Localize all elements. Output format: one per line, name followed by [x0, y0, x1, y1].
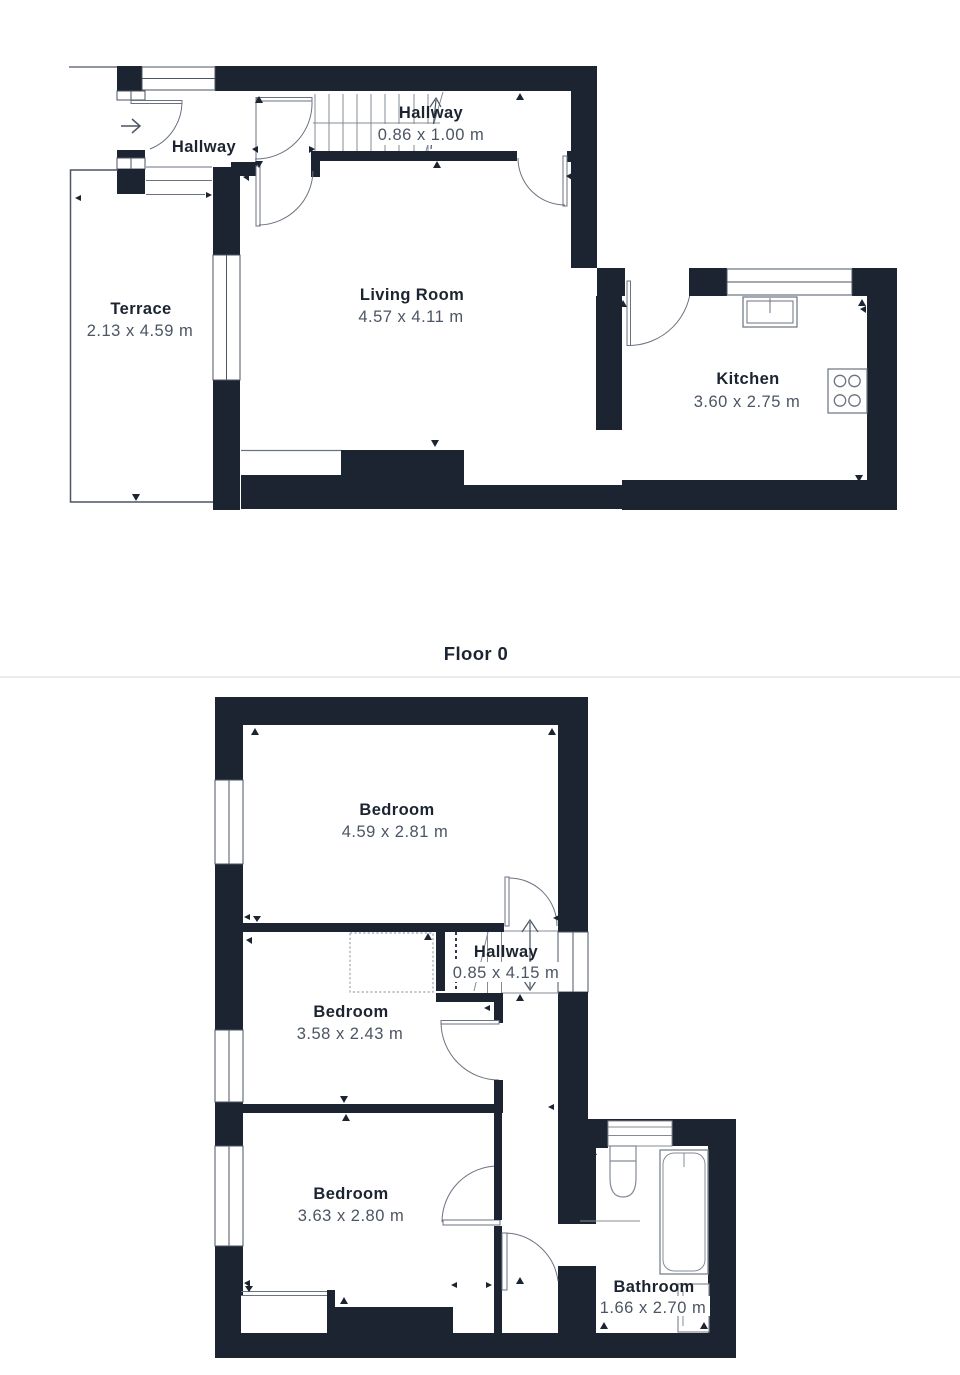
svg-text:0.85 x 4.15 m: 0.85 x 4.15 m — [453, 964, 559, 982]
svg-text:4.57 x 4.11 m: 4.57 x 4.11 m — [358, 308, 463, 326]
svg-text:Hallway: Hallway — [474, 943, 539, 961]
svg-text:1.66 x 2.70 m: 1.66 x 2.70 m — [600, 1299, 706, 1317]
svg-text:Hallway: Hallway — [172, 138, 237, 156]
svg-text:Bedroom: Bedroom — [359, 801, 434, 819]
svg-text:Bedroom: Bedroom — [313, 1003, 388, 1021]
svg-text:Bathroom: Bathroom — [613, 1278, 694, 1296]
svg-text:Bedroom: Bedroom — [313, 1185, 388, 1203]
svg-text:3.60 x 2.75 m: 3.60 x 2.75 m — [694, 393, 800, 411]
svg-text:Living Room: Living Room — [360, 286, 464, 304]
svg-text:0.86 x 1.00 m: 0.86 x 1.00 m — [378, 126, 484, 144]
svg-text:Terrace: Terrace — [110, 300, 171, 318]
svg-text:2.13 x 4.59 m: 2.13 x 4.59 m — [87, 322, 193, 340]
svg-text:Floor 0: Floor 0 — [444, 643, 508, 664]
svg-text:4.59 x 2.81 m: 4.59 x 2.81 m — [342, 823, 448, 841]
svg-text:3.63 x 2.80 m: 3.63 x 2.80 m — [298, 1207, 404, 1225]
svg-text:Kitchen: Kitchen — [716, 370, 779, 388]
svg-text:Hallway: Hallway — [399, 104, 464, 122]
svg-text:3.58 x 2.43 m: 3.58 x 2.43 m — [297, 1025, 403, 1043]
